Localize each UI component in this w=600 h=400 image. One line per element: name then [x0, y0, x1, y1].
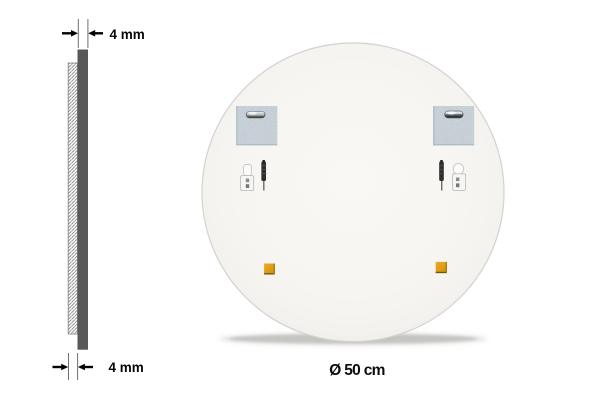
svg-text:4 mm: 4 mm	[110, 27, 145, 42]
svg-text:Ø 50 cm: Ø 50 cm	[329, 362, 384, 379]
svg-text:4 mm: 4 mm	[109, 360, 144, 375]
